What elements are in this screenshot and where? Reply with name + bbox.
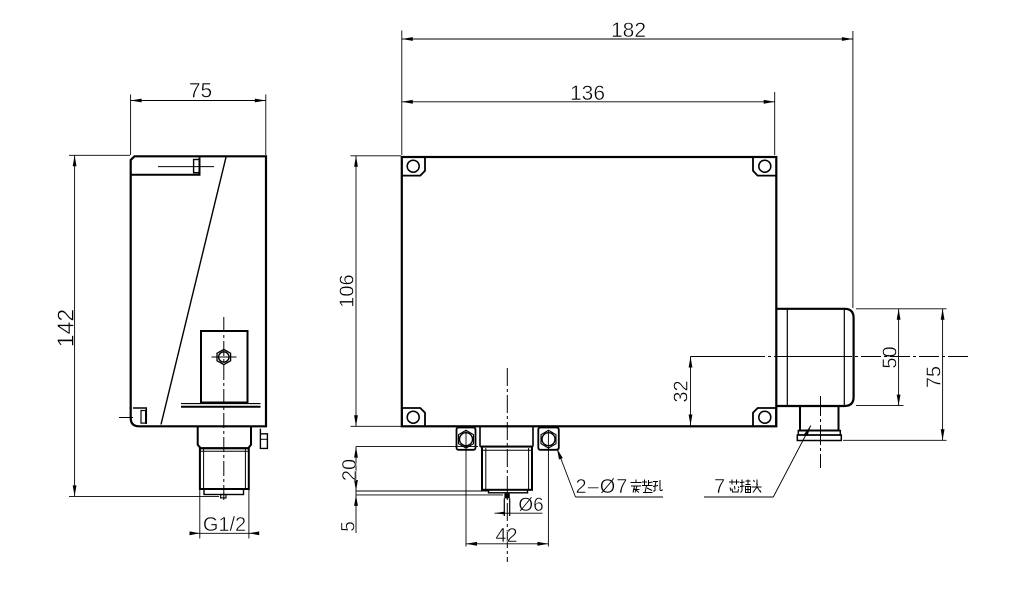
svg-text:G1/2: G1/2 [203, 514, 246, 536]
svg-text:2–Ø7: 2–Ø7 [576, 476, 629, 498]
svg-text:50: 50 [880, 346, 902, 368]
svg-text:20: 20 [339, 459, 361, 481]
svg-text:32: 32 [671, 380, 693, 402]
svg-text:5: 5 [339, 521, 360, 532]
svg-text:42: 42 [495, 525, 517, 547]
svg-text:182: 182 [611, 19, 646, 42]
svg-text:7: 7 [714, 476, 725, 498]
svg-text:142: 142 [53, 309, 79, 347]
svg-text:136: 136 [570, 82, 605, 105]
svg-text:75: 75 [924, 366, 946, 388]
svg-text:75: 75 [189, 80, 212, 103]
svg-text:Ø6: Ø6 [518, 495, 543, 516]
svg-text:106: 106 [337, 274, 359, 307]
